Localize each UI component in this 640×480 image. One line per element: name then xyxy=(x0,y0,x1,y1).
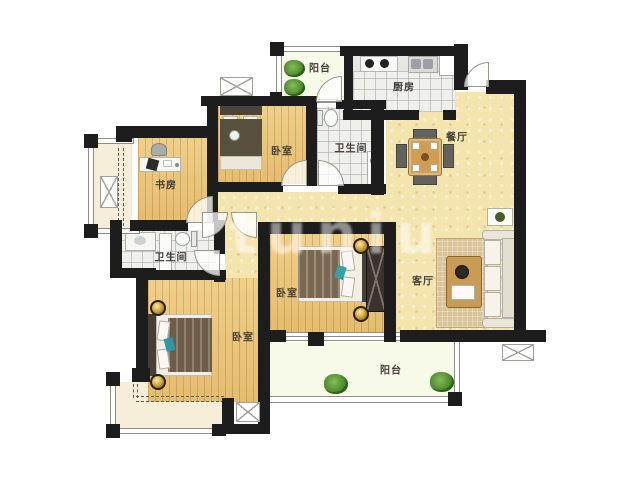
dining-chair-icon xyxy=(396,144,407,168)
railing-post xyxy=(106,424,120,438)
bed-decor xyxy=(229,130,240,141)
room-label-study: 书房 xyxy=(155,177,177,192)
wall-segment xyxy=(338,184,386,194)
railing xyxy=(276,46,348,52)
toilet-bowl xyxy=(175,232,190,246)
wall-post xyxy=(116,126,132,142)
toilet-icon xyxy=(175,231,198,248)
ac-platform-icon xyxy=(100,176,118,208)
bed-blanket xyxy=(168,318,212,372)
railing-post xyxy=(308,332,324,346)
bedside-lamp-icon xyxy=(353,306,369,322)
sink-basin xyxy=(423,59,433,69)
wall-segment xyxy=(258,222,270,432)
wall-segment xyxy=(443,110,456,120)
plant-icon xyxy=(324,374,348,394)
wall-segment xyxy=(136,270,148,376)
plant-icon xyxy=(284,79,305,96)
railing-post xyxy=(270,92,282,104)
railing-post xyxy=(106,372,120,386)
teapot-icon xyxy=(455,265,469,279)
plant-icon xyxy=(495,212,505,222)
wall-post xyxy=(132,368,150,382)
room-label-living: 客厅 xyxy=(412,273,434,288)
room-label-dining: 餐厅 xyxy=(446,129,468,144)
plant-icon xyxy=(430,372,454,392)
wall-segment xyxy=(340,46,466,56)
plate xyxy=(412,142,420,150)
coffee-table-icon xyxy=(446,256,482,308)
ac-platform-icon xyxy=(502,344,534,361)
sofa-cushion xyxy=(484,266,501,291)
room-label-bedroom-mid: 卧室 xyxy=(276,285,298,300)
sofa-cushion xyxy=(484,292,501,317)
bay-window-dashed xyxy=(118,148,124,226)
room-label-bedroom-top: 卧室 xyxy=(271,143,293,158)
room-label-bedroom-left: 卧室 xyxy=(232,329,254,344)
burner xyxy=(380,59,389,68)
bedside-lamp-icon xyxy=(150,374,166,390)
toilet-tank xyxy=(191,231,197,247)
plate xyxy=(430,142,438,150)
paper xyxy=(163,160,172,167)
plant-icon xyxy=(284,60,305,77)
railing xyxy=(454,338,460,400)
wall-segment xyxy=(222,424,270,434)
desk-icon xyxy=(138,143,184,173)
railing xyxy=(268,396,460,403)
stove-icon xyxy=(360,56,398,72)
sink-basin xyxy=(411,59,421,69)
bed-headboard xyxy=(220,106,262,115)
railing xyxy=(110,428,222,434)
toilet-bowl xyxy=(324,109,338,127)
bed-icon xyxy=(220,106,262,170)
room-label-bathroom-mid: 卫生间 xyxy=(155,249,188,264)
wall-segment xyxy=(384,222,396,342)
dining-chair-icon xyxy=(443,144,454,168)
ac-platform-icon xyxy=(220,77,253,96)
mouse xyxy=(175,163,179,167)
wardrobe-icon xyxy=(366,246,386,312)
bedside-lamp-icon xyxy=(150,300,166,316)
wall-segment xyxy=(428,330,546,342)
room-label-balcony-top: 阳台 xyxy=(309,60,331,75)
bed-icon xyxy=(298,246,370,302)
plate xyxy=(412,164,420,172)
wall-segment xyxy=(130,220,188,231)
washbasin-icon xyxy=(125,232,156,251)
tray xyxy=(451,285,475,300)
toilet-tank xyxy=(317,110,323,126)
railing-post xyxy=(212,424,226,436)
wall-segment xyxy=(130,126,218,138)
bed-headboard xyxy=(148,314,156,376)
toilet-icon xyxy=(317,109,339,127)
plate xyxy=(430,164,438,172)
bed-blanket xyxy=(220,119,262,156)
bed-blanket xyxy=(298,250,340,298)
wall-segment xyxy=(306,96,317,186)
sofa-cushion xyxy=(484,240,501,265)
room-label-kitchen: 厨房 xyxy=(393,79,415,94)
bed-sheet xyxy=(220,156,262,170)
room-label-balcony-bottom: 阳台 xyxy=(380,362,402,377)
railing-post xyxy=(84,224,98,238)
wall-segment xyxy=(201,96,317,106)
wall-segment xyxy=(258,222,396,234)
floor-plan: 阳台 厨房 餐厅 卧室 卫生间 书房 卫生间 卧室 客厅 卧室 阳台 tuniu xyxy=(0,0,640,480)
wall-segment xyxy=(400,330,430,342)
bedside-lamp-icon xyxy=(353,238,369,254)
railing-post xyxy=(448,392,462,406)
kitchen-sink-icon xyxy=(408,56,438,73)
wall-segment xyxy=(514,80,526,342)
wall-segment xyxy=(343,110,419,120)
wall-segment xyxy=(207,182,283,192)
sofa-icon xyxy=(482,230,516,328)
wall-segment xyxy=(262,330,286,342)
room-label-bathroom-top: 卫生间 xyxy=(335,140,368,155)
sofa-armrest xyxy=(482,318,516,328)
basin xyxy=(134,236,146,245)
railing xyxy=(88,138,94,234)
center-bowl xyxy=(421,153,429,161)
railing-post xyxy=(270,42,284,56)
balcony-bottom-floor xyxy=(270,342,454,396)
bed-icon xyxy=(148,314,212,376)
bay-window-dashed xyxy=(133,384,138,398)
desk-chair-icon xyxy=(151,143,167,156)
burner xyxy=(365,59,374,68)
ac-platform-icon xyxy=(236,402,260,422)
bay-window-dashed xyxy=(136,396,224,402)
end-table xyxy=(487,208,513,226)
railing-post xyxy=(84,134,98,148)
